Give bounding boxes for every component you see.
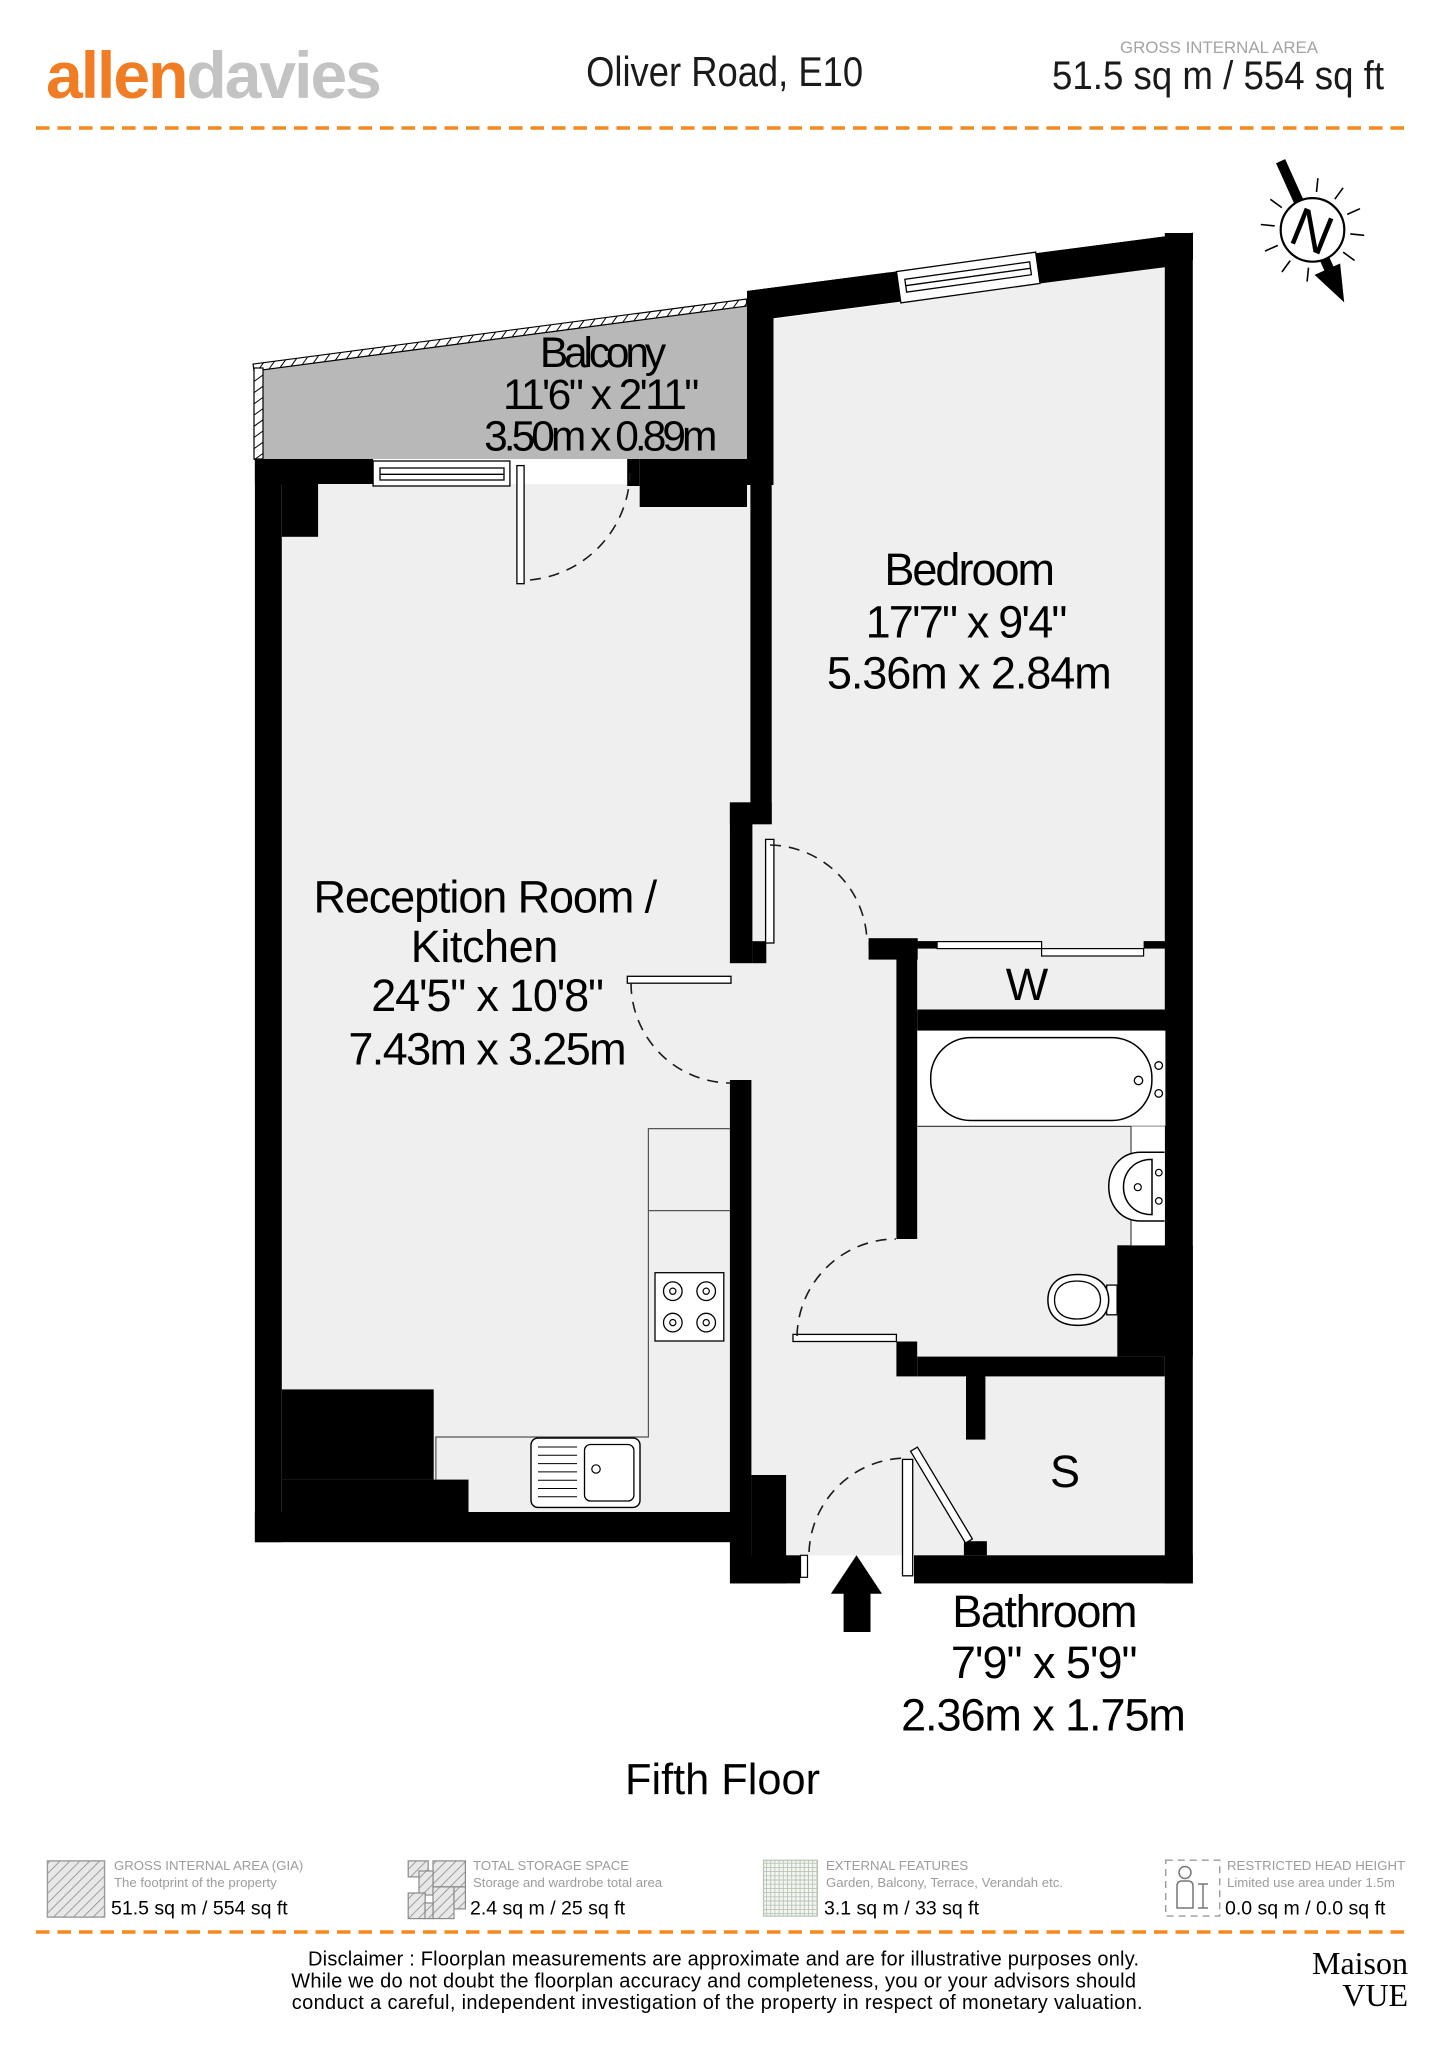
svg-text:24'5" x 10'8": 24'5" x 10'8" bbox=[371, 970, 604, 1021]
svg-text:GROSS INTERNAL AREA (GIA): GROSS INTERNAL AREA (GIA) bbox=[114, 1858, 303, 1873]
svg-text:0.0 sq m / 0.0 sq ft: 0.0 sq m / 0.0 sq ft bbox=[1225, 1898, 1386, 1920]
svg-text:conduct a careful, independent: conduct a careful, independent investiga… bbox=[292, 1992, 1143, 2014]
svg-text:S: S bbox=[1050, 1446, 1080, 1497]
svg-text:Disclaimer : Floorplan measure: Disclaimer : Floorplan measurements are … bbox=[308, 1948, 1139, 1970]
svg-text:Oliver Road, E10: Oliver Road, E10 bbox=[586, 48, 863, 95]
svg-text:EXTERNAL FEATURES: EXTERNAL FEATURES bbox=[826, 1858, 968, 1873]
svg-text:Bedroom: Bedroom bbox=[884, 544, 1055, 595]
svg-text:Balcony: Balcony bbox=[540, 330, 667, 377]
svg-text:7.43m x 3.25m: 7.43m x 3.25m bbox=[348, 1023, 626, 1074]
svg-text:51.5 sq m / 554 sq ft: 51.5 sq m / 554 sq ft bbox=[111, 1898, 288, 1920]
svg-text:3.1 sq m / 33 sq ft: 3.1 sq m / 33 sq ft bbox=[824, 1898, 980, 1920]
svg-text:7'9" x 5'9": 7'9" x 5'9" bbox=[951, 1637, 1138, 1688]
svg-text:Limited use area under 1.5m: Limited use area under 1.5m bbox=[1227, 1875, 1395, 1890]
svg-text:Garden, Balcony, Terrace, Vera: Garden, Balcony, Terrace, Verandah etc. bbox=[826, 1875, 1063, 1890]
svg-text:RESTRICTED HEAD HEIGHT: RESTRICTED HEAD HEIGHT bbox=[1227, 1858, 1405, 1873]
svg-text:Bathroom: Bathroom bbox=[952, 1586, 1137, 1637]
svg-text:While we do not doubt the floo: While we do not doubt the floorplan accu… bbox=[291, 1971, 1136, 1993]
svg-text:11'6" x 2'11": 11'6" x 2'11" bbox=[503, 372, 699, 419]
svg-text:Storage and wardrobe total are: Storage and wardrobe total area bbox=[473, 1875, 663, 1890]
svg-text:The footprint of the property: The footprint of the property bbox=[114, 1875, 277, 1890]
svg-text:2.4 sq m / 25 sq ft: 2.4 sq m / 25 sq ft bbox=[470, 1898, 626, 1920]
svg-text:Maison: Maison bbox=[1312, 1945, 1408, 1981]
svg-text:5.36m x 2.84m: 5.36m x 2.84m bbox=[827, 648, 1112, 699]
svg-text:TOTAL STORAGE SPACE: TOTAL STORAGE SPACE bbox=[473, 1858, 629, 1873]
svg-text:3.50m x 0.89m: 3.50m x 0.89m bbox=[484, 414, 717, 461]
svg-text:allendavies: allendavies bbox=[46, 38, 380, 112]
svg-text:W: W bbox=[1006, 959, 1049, 1010]
svg-text:Fifth Floor: Fifth Floor bbox=[625, 1755, 820, 1804]
svg-text:51.5 sq m / 554 sq ft: 51.5 sq m / 554 sq ft bbox=[1052, 54, 1384, 98]
svg-text:VUE: VUE bbox=[1342, 1977, 1408, 2013]
svg-text:Reception Room /: Reception Room / bbox=[313, 871, 657, 922]
svg-text:17'7" x 9'4": 17'7" x 9'4" bbox=[866, 597, 1068, 648]
svg-text:2.36m x 1.75m: 2.36m x 1.75m bbox=[901, 1690, 1186, 1741]
svg-text:Kitchen: Kitchen bbox=[411, 921, 559, 972]
